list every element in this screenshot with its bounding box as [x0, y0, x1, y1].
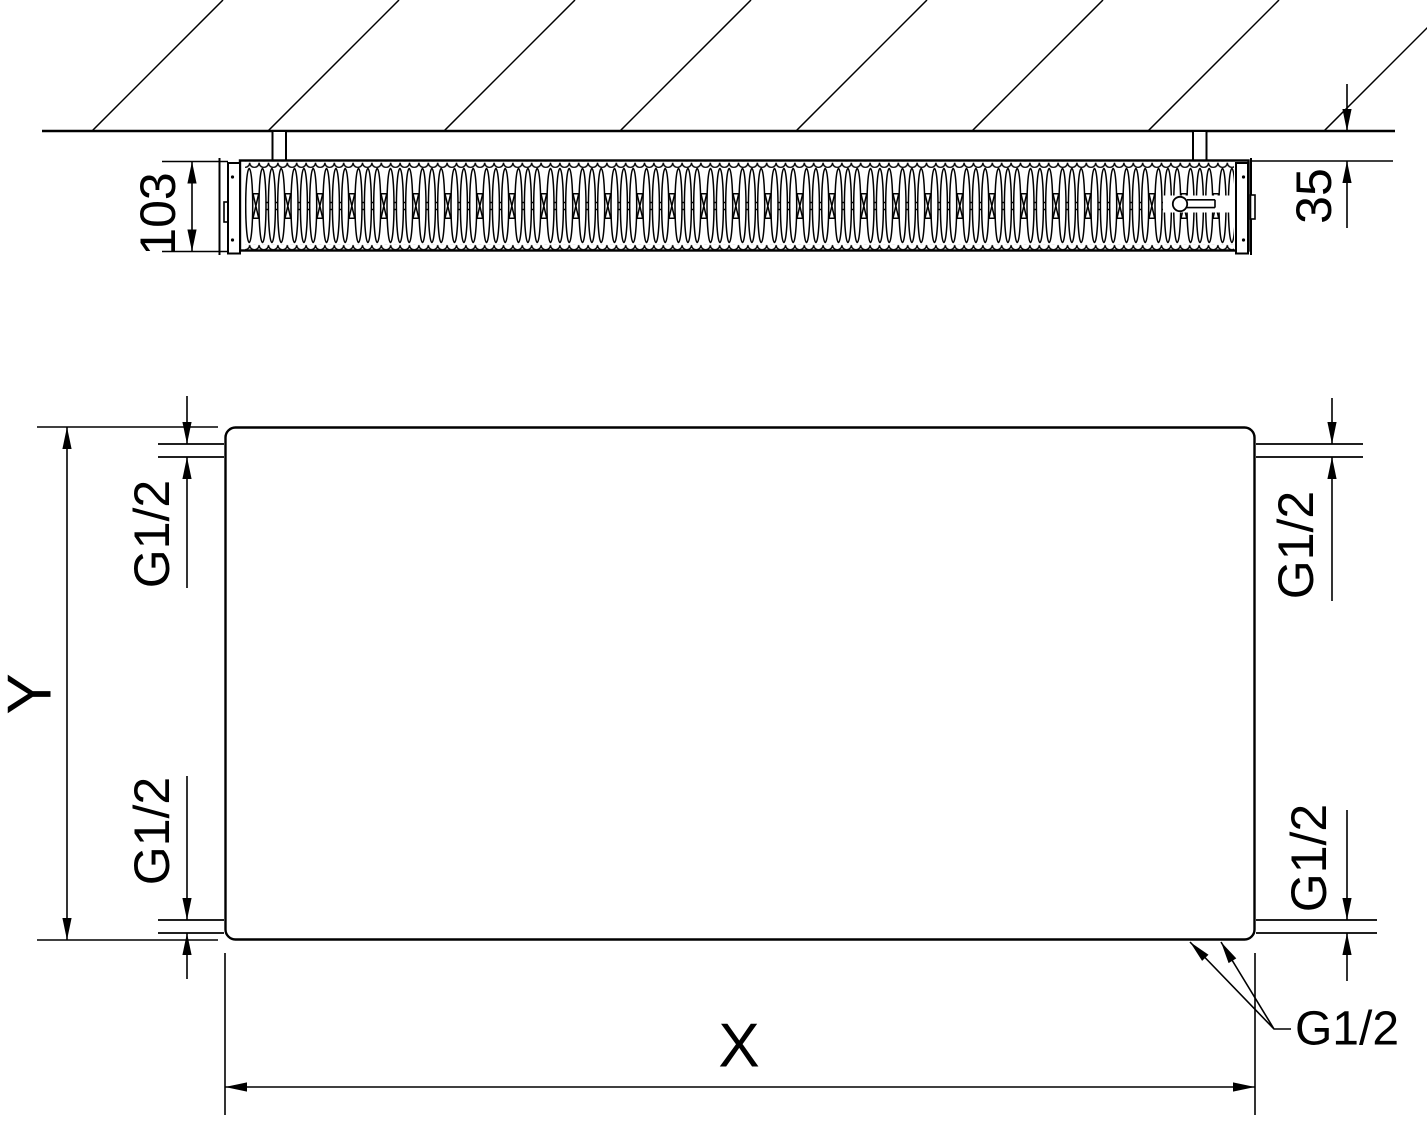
air-vent	[1163, 196, 1233, 213]
dimension-height: Y	[0, 427, 218, 940]
port-stub-bottom-left	[158, 920, 224, 933]
dimension-port-bottom-left: G1/2	[124, 776, 192, 979]
port-stub-top-right	[1256, 444, 1363, 457]
dimension-port-top-left: G1/2	[124, 396, 192, 588]
fin-pattern	[245, 167, 1234, 244]
dimension-depth: 103	[130, 162, 228, 256]
end-cap-right	[1236, 163, 1248, 254]
dimension-wall-clearance: 35	[1250, 84, 1393, 228]
dimension-port-top-right: G1/2	[1268, 398, 1337, 601]
dimension-width: X	[225, 953, 1255, 1115]
mounting-bracket-right	[1193, 131, 1207, 161]
dimension-label-height: Y	[0, 673, 65, 714]
dimension-label-depth: 103	[130, 172, 186, 255]
port-stub-top-left	[158, 444, 224, 457]
wall-hatch-pattern	[92, 0, 1427, 131]
radiator-technical-drawing: 103 35 G1/2 G1/2	[0, 0, 1427, 1125]
port-label-top-right: G1/2	[1268, 491, 1324, 599]
port-stub-bottom-right	[1256, 920, 1377, 933]
radiator-front-panel	[226, 428, 1255, 940]
dimension-label-width: X	[718, 1012, 759, 1081]
end-cap-left	[228, 163, 240, 254]
bottom-ports-leader: G1/2	[1190, 942, 1399, 1056]
port-label-bottom-left: G1/2	[124, 777, 180, 885]
dimension-port-bottom-right: G1/2	[1281, 804, 1352, 981]
radiator-cross-section	[220, 158, 1256, 255]
port-label-bottom-pair: G1/2	[1295, 1003, 1399, 1056]
port-label-bottom-right: G1/2	[1281, 804, 1337, 912]
side-tab-right	[1251, 195, 1256, 219]
fin-end-row-bottom	[245, 244, 1234, 250]
dimension-label-wall-clearance: 35	[1286, 168, 1342, 224]
technical-drawing-page: 103 35 G1/2 G1/2	[0, 0, 1427, 1125]
mounting-bracket-left	[273, 131, 287, 161]
port-label-top-left: G1/2	[124, 480, 180, 588]
